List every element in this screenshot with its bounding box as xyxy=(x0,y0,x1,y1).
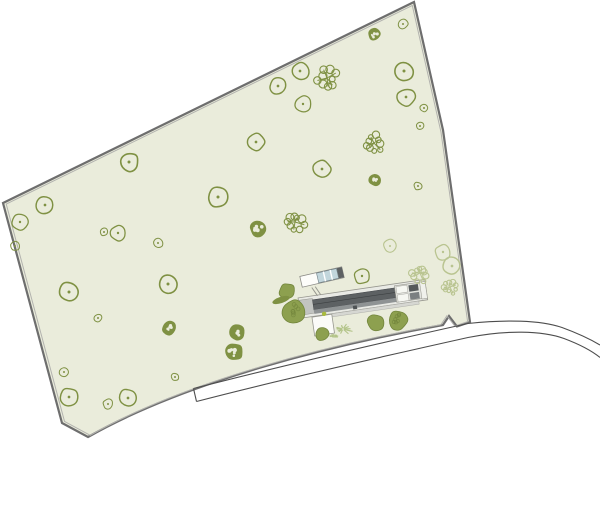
tree-trunk-dot xyxy=(217,196,220,199)
tree-trunk-dot xyxy=(44,204,47,207)
tree-trunk-dot xyxy=(68,291,71,294)
tree-speckle xyxy=(167,329,169,331)
tree-trunk-dot xyxy=(255,141,258,144)
tree-trunk-dot xyxy=(277,85,280,88)
tree-trunk-dot xyxy=(423,107,425,109)
tree-trunk-dot xyxy=(103,231,105,233)
tree-speckle xyxy=(371,35,373,37)
tree-trunk-dot xyxy=(107,403,109,405)
tree-trunk-dot xyxy=(417,185,419,187)
tree-speckle xyxy=(226,344,242,359)
tree-speckle xyxy=(253,227,255,229)
tree-speckle xyxy=(227,349,231,353)
tree-trunk-dot xyxy=(442,251,444,253)
parcel-boundary-outer xyxy=(3,2,470,437)
tree-trunk-dot xyxy=(63,371,65,373)
tree-trunk-dot xyxy=(19,221,21,223)
tree-trunk-dot xyxy=(451,265,454,268)
tree-trunk-dot xyxy=(128,161,131,164)
spiky-frond xyxy=(333,334,334,336)
tree-trunk-dot xyxy=(127,397,130,400)
tree-speckle xyxy=(376,32,379,35)
tree-trunk-dot xyxy=(405,96,408,99)
road-end-cap xyxy=(194,389,197,402)
site-plan-canvas xyxy=(0,0,600,520)
tree-speckle xyxy=(169,324,172,327)
main-house-part xyxy=(397,293,409,302)
tree-speckle xyxy=(373,32,376,35)
tree-trunk-dot xyxy=(321,168,324,171)
tree-branch xyxy=(294,217,295,222)
tree-trunk-dot xyxy=(419,125,421,127)
main-house-part xyxy=(353,305,357,309)
tree-speckle xyxy=(233,348,237,352)
main-house-part xyxy=(396,285,408,294)
tree-trunk-dot xyxy=(68,396,71,399)
site-plan xyxy=(0,0,600,520)
tree-trunk-dot xyxy=(157,242,159,244)
tree-trunk-dot xyxy=(389,245,391,247)
tree-trunk-dot xyxy=(97,317,99,319)
tree-trunk-dot xyxy=(117,232,119,234)
tree-trunk-dot xyxy=(14,245,16,247)
tree-trunk-dot xyxy=(403,70,406,73)
tree-speckle xyxy=(233,354,236,357)
tree-trunk-dot xyxy=(402,23,404,25)
tree-trunk-dot xyxy=(299,70,302,73)
tree-trunk-dot xyxy=(167,283,170,286)
tree-trunk-dot xyxy=(361,275,363,277)
main-house-part xyxy=(410,292,420,300)
tree-speckle xyxy=(256,228,260,232)
tree-speckle xyxy=(168,327,170,329)
tree-speckle xyxy=(230,325,244,340)
tree-speckle xyxy=(374,178,377,181)
main-house-part xyxy=(408,284,418,292)
tree-speckle xyxy=(236,330,239,333)
tree-speckle xyxy=(260,225,264,229)
tree-trunk-dot xyxy=(302,103,304,105)
tree-speckle xyxy=(250,221,266,237)
tree-trunk-dot xyxy=(174,376,176,378)
